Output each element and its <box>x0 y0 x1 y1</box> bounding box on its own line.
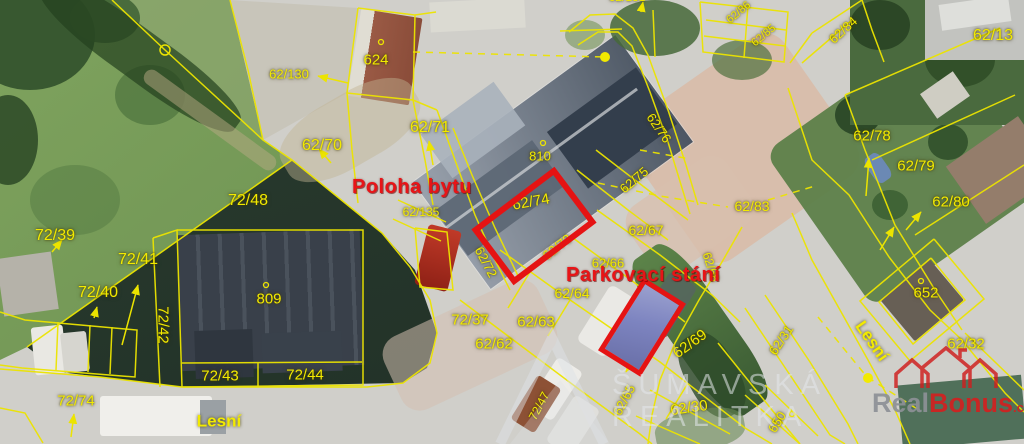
parcel-label: 62/130 <box>269 68 309 81</box>
parcel-label: 72/44 <box>286 368 324 383</box>
parcel-label: 62/83 <box>734 199 769 213</box>
parcel-label: 72/41 <box>118 252 158 268</box>
parcel-label: 62/71 <box>410 120 450 136</box>
parcel-label: 62/62 <box>475 337 513 352</box>
parcel-label: 809 <box>256 292 281 307</box>
cadastral-map: 62/13062462/7162/7072/4872/3972/4172/407… <box>0 0 1024 444</box>
parcel-label: 72/37 <box>451 313 489 328</box>
parcel-label: 62/79 <box>897 159 935 174</box>
parcel-label: 72/40 <box>78 285 118 301</box>
parcel-label: 62/135 <box>403 206 440 218</box>
parcel-label: 62/63 <box>517 315 555 330</box>
parcel-label: 652 <box>913 286 938 301</box>
brand-watermark: RealBonus.cz <box>868 346 1024 434</box>
street-label: Lesní <box>197 413 241 430</box>
parcel-label: 72/74 <box>57 394 95 409</box>
brand-tld: .cz <box>1013 400 1024 415</box>
parcel-label: 72/43 <box>201 369 239 384</box>
parcel-label: 62/13 <box>973 28 1013 44</box>
brand-gray: Real <box>872 388 929 418</box>
parcel-label: 62/80 <box>932 195 970 210</box>
parking-space-label: Parkovací stání <box>566 264 720 287</box>
brand-red: Bonus <box>929 388 1013 418</box>
parcel-label: 62/70 <box>302 138 342 154</box>
parcel-label: 72/48 <box>228 193 268 209</box>
parcel-label: 72/42 <box>156 306 171 344</box>
houses-icon <box>868 346 1024 394</box>
parcel-label: 62/64 <box>554 286 589 300</box>
parcel-label: 72/39 <box>35 228 75 244</box>
apartment-location-label: Poloha bytu <box>352 176 472 199</box>
parcel-label: 62/131 <box>609 0 646 3</box>
parcel-label: 624 <box>363 53 388 68</box>
parcel-label: 810 <box>529 150 551 163</box>
brand-watermark-text: RealBonus.cz <box>872 390 1024 417</box>
parcel-label: 62/78 <box>853 129 891 144</box>
parcel-label: 62/67 <box>628 223 663 237</box>
